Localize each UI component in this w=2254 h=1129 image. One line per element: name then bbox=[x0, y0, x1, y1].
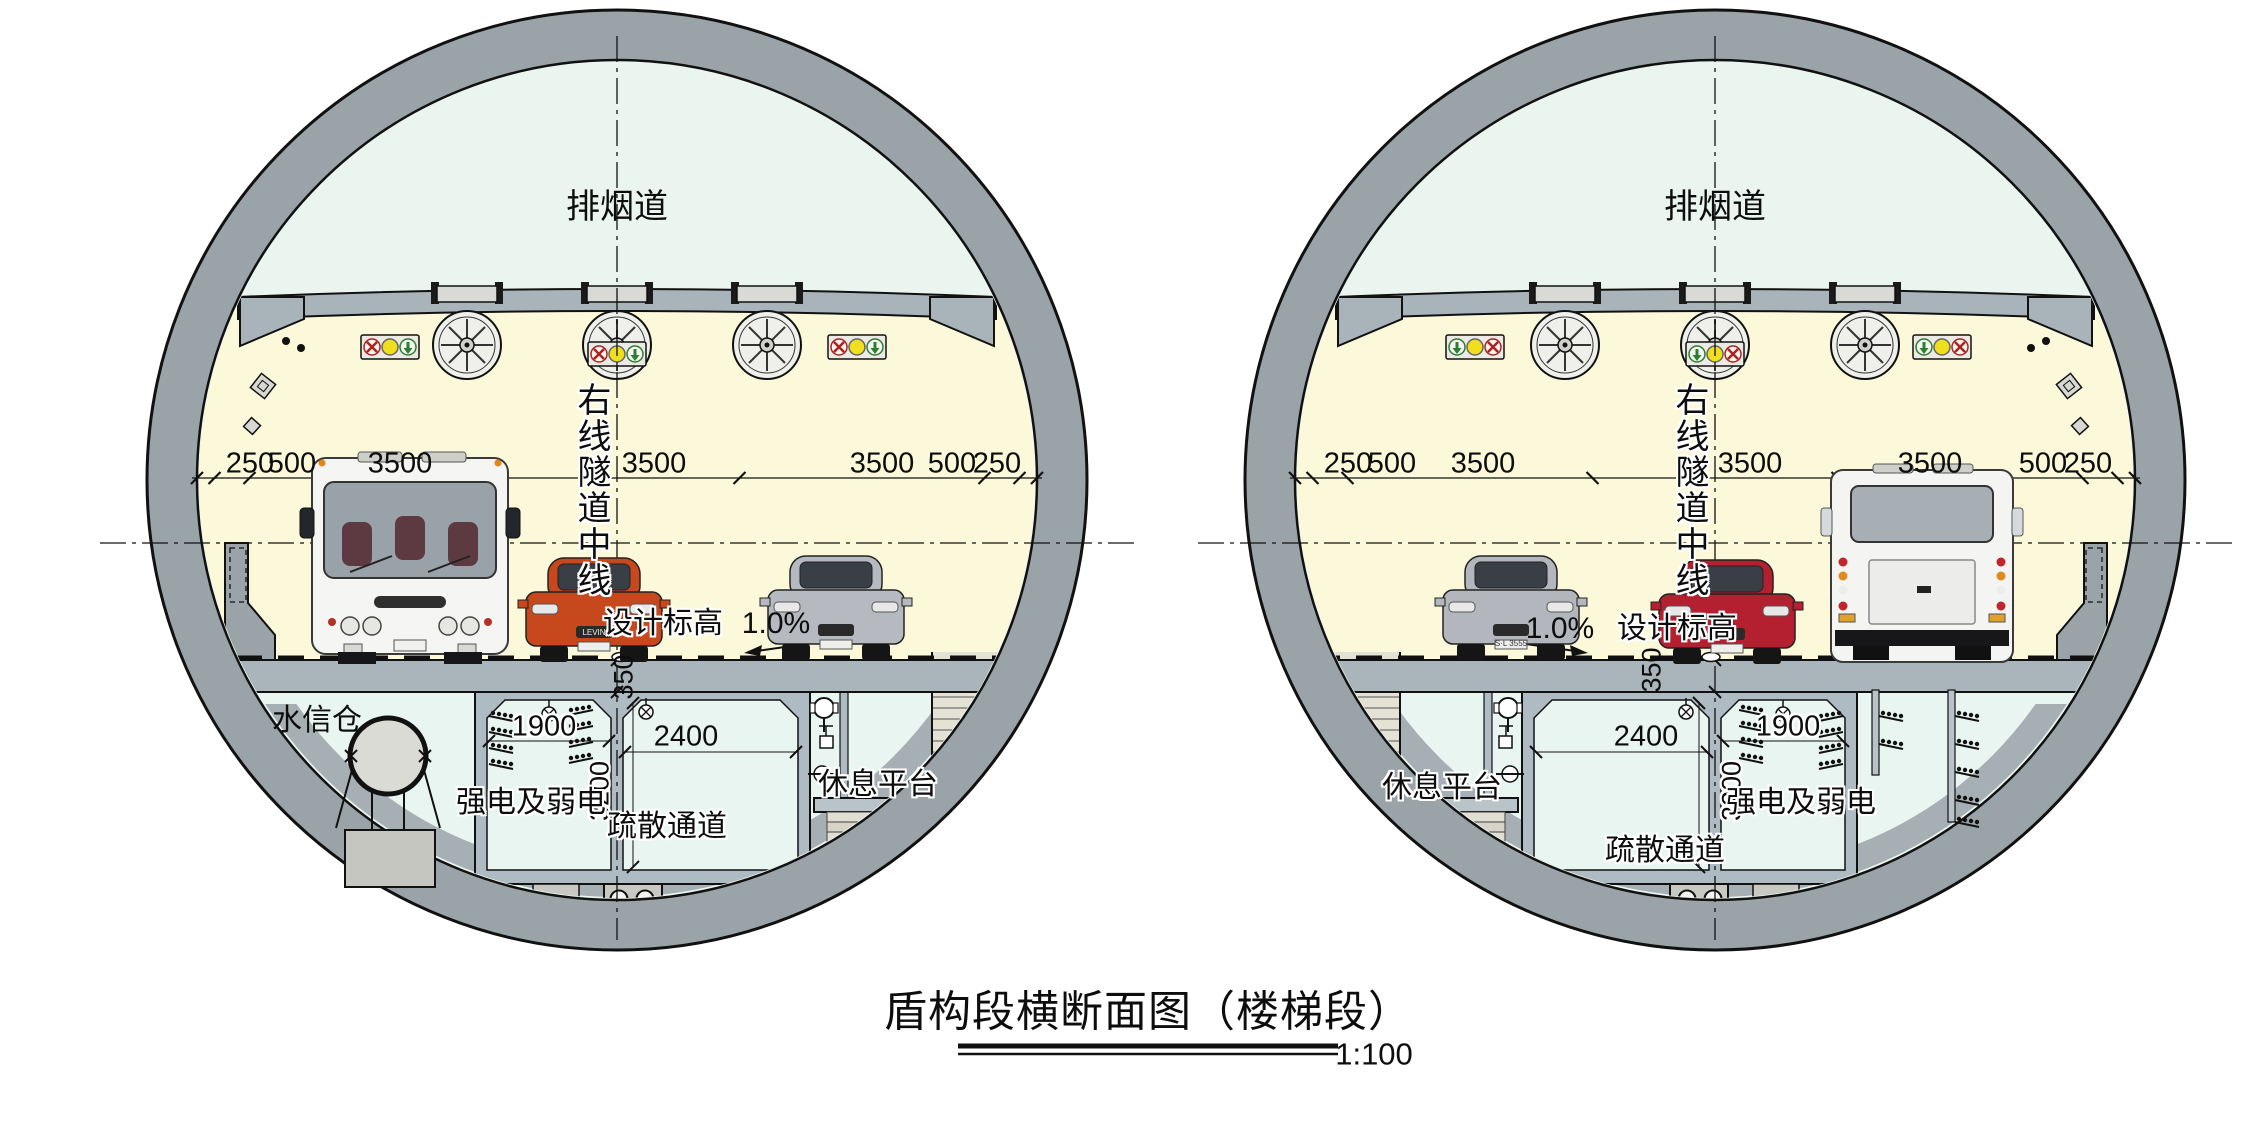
right-dim-3500-c: 3500 bbox=[1898, 450, 1963, 479]
left-design-elevation-label: 设计标高 bbox=[603, 609, 723, 639]
right-power-label: 强电及弱电 bbox=[1726, 788, 1876, 818]
left-dim-1900: 1900 bbox=[512, 713, 577, 742]
right-dim-250-b: 250 bbox=[2064, 450, 2112, 479]
left-dim-3500-a: 3500 bbox=[368, 450, 433, 479]
left-tunnel bbox=[100, 10, 1134, 950]
right-bus bbox=[1821, 464, 2023, 662]
right-dim-3500-a: 3500 bbox=[1451, 450, 1516, 479]
right-platform-label: 休息平台 bbox=[1382, 773, 1502, 803]
right-slope-label: 1.0% bbox=[1526, 614, 1594, 644]
right-tunnel-centerline-label: 右线隧道中线 bbox=[1672, 382, 1706, 598]
right-dim-3500-b: 3500 bbox=[1718, 450, 1783, 479]
left-dim-500-b: 500 bbox=[928, 450, 976, 479]
tunnel-cross-section-drawing bbox=[0, 0, 2254, 1129]
title-underline bbox=[958, 1046, 1338, 1054]
left-dim-500-a: 500 bbox=[268, 450, 316, 479]
left-passage-label: 疏散通道 bbox=[607, 812, 727, 842]
left-dim-3500-b: 3500 bbox=[622, 450, 687, 479]
right-license-plate: S·L 3555 bbox=[1495, 640, 1527, 648]
right-dim-2400: 2400 bbox=[1614, 723, 1679, 752]
left-bus bbox=[300, 452, 520, 664]
left-slope-label: 1.0% bbox=[742, 609, 810, 639]
right-dim-500-a: 500 bbox=[1368, 450, 1416, 479]
drawing-scale: 1:100 bbox=[1335, 1039, 1413, 1070]
right-dim-1900: 1900 bbox=[1756, 713, 1821, 742]
drawing-title: 盾构段横断面图（楼梯段） bbox=[884, 992, 1412, 1035]
left-deck-dim-350: 350 bbox=[611, 654, 638, 699]
tunnel-cross-section-sheet: 排烟道 右线隧道中线 250 500 3500 3500 3500 500 25… bbox=[0, 0, 2254, 1129]
left-dim-2400: 2400 bbox=[654, 723, 719, 752]
left-dim-250-b: 250 bbox=[973, 450, 1021, 479]
right-smoke-duct-label: 排烟道 bbox=[1664, 190, 1766, 224]
left-platform-label: 休息平台 bbox=[818, 770, 938, 800]
left-car-badge: LEVIN bbox=[582, 629, 605, 637]
left-dim-3500-c: 3500 bbox=[850, 450, 915, 479]
right-dim-250-a: 250 bbox=[1324, 450, 1372, 479]
left-water-signal-bay-label: 水信仓 bbox=[272, 706, 362, 736]
right-tunnel bbox=[1198, 10, 2232, 950]
right-deck-dim-350: 350 bbox=[1639, 647, 1666, 692]
right-design-elevation-label: 设计标高 bbox=[1617, 614, 1737, 644]
right-passage-label: 疏散通道 bbox=[1605, 836, 1725, 866]
right-dim-500-b: 500 bbox=[2019, 450, 2067, 479]
left-tunnel-centerline-label: 右线隧道中线 bbox=[574, 382, 608, 598]
left-power-label: 强电及弱电 bbox=[456, 788, 606, 818]
left-smoke-duct-label: 排烟道 bbox=[566, 190, 668, 224]
